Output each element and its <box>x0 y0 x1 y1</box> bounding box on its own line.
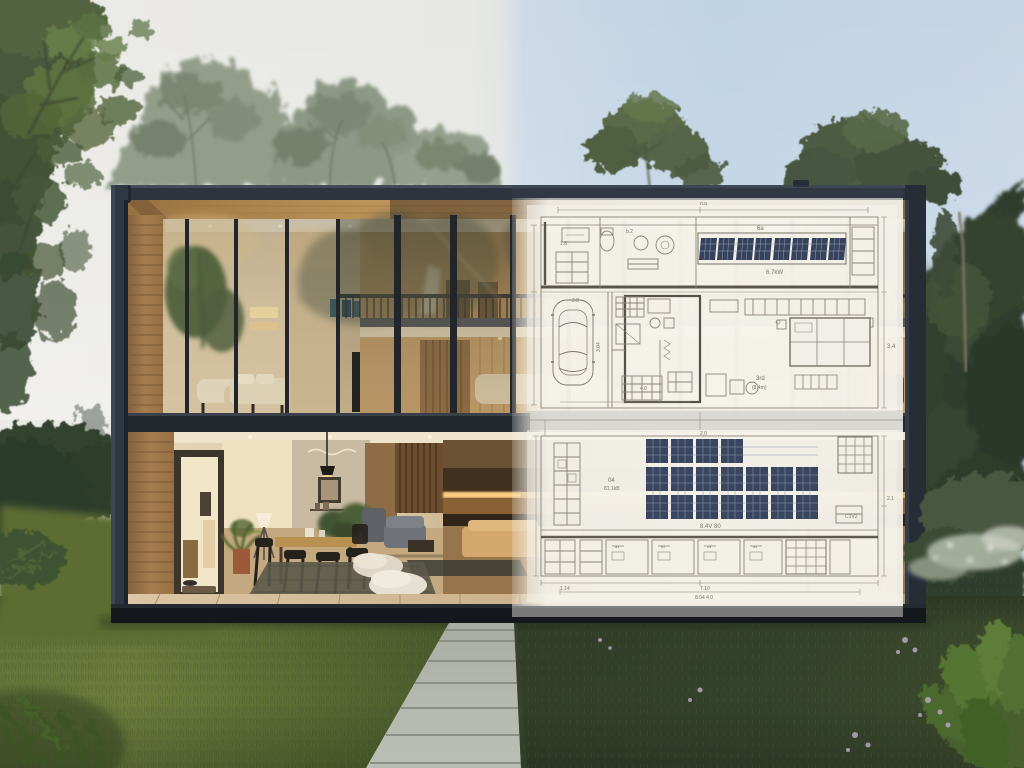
svg-text:n.a: n.a <box>700 201 707 207</box>
svg-text:3.04: 3.04 <box>596 342 602 352</box>
svg-text:(8.4m): (8.4m) <box>752 385 767 391</box>
svg-text:2.0: 2.0 <box>572 298 579 304</box>
svg-text:a1: a1 <box>615 544 620 549</box>
svg-text:1.14: 1.14 <box>560 586 570 592</box>
svg-text:8.04 4.0: 8.04 4.0 <box>695 595 713 601</box>
svg-text:C1V2: C1V2 <box>845 514 858 520</box>
svg-text:b2: b2 <box>661 544 666 549</box>
svg-text:3rd: 3rd <box>756 376 765 382</box>
svg-text:b.2: b.2 <box>626 229 633 235</box>
svg-text:2.1: 2.1 <box>887 496 894 502</box>
svg-text:81.1kB: 81.1kB <box>604 486 620 492</box>
svg-text:6a: 6a <box>757 226 764 232</box>
svg-text:4.0: 4.0 <box>640 386 647 392</box>
svg-text:6.7kW: 6.7kW <box>766 270 783 276</box>
svg-text:04: 04 <box>608 478 615 484</box>
svg-text:3.4: 3.4 <box>887 344 896 350</box>
svg-text:7.10: 7.10 <box>700 586 710 592</box>
svg-text:8.4V 80: 8.4V 80 <box>700 524 721 530</box>
svg-text:d4: d4 <box>753 544 758 549</box>
svg-text:2.0: 2.0 <box>700 431 707 437</box>
svg-text:1.8: 1.8 <box>560 241 567 247</box>
